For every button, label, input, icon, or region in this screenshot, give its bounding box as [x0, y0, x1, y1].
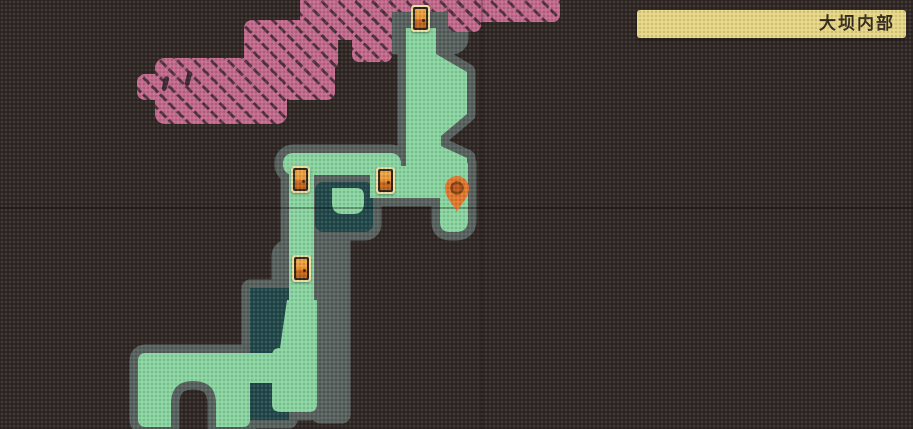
map-canvas: [0, 0, 913, 429]
door-knob-dot: [303, 269, 306, 272]
door-frame: [294, 257, 309, 280]
area-title-banner: 大坝内部: [637, 10, 906, 38]
player-location-marker: [443, 175, 471, 213]
unexplored-area: [137, 0, 560, 124]
location-pin-icon: [443, 175, 471, 213]
door-top: [411, 5, 430, 32]
door-leaf: [380, 171, 391, 190]
door-corridor-left: [291, 166, 310, 193]
door-corridor-right: [376, 167, 395, 194]
door-leaf: [295, 170, 306, 189]
door-knob-dot: [387, 181, 390, 184]
door-leaf: [296, 259, 307, 278]
door-frame: [378, 169, 393, 192]
area-title: 大坝内部: [819, 10, 906, 38]
door-leaf: [415, 9, 426, 28]
door-frame: [293, 168, 308, 191]
door-knob-dot: [422, 19, 425, 22]
door-lower: [292, 255, 311, 282]
door-knob-dot: [302, 180, 305, 183]
map-viewport[interactable]: 大坝内部: [0, 0, 913, 429]
door-frame: [413, 7, 428, 30]
map-grid-vline: [481, 0, 483, 429]
